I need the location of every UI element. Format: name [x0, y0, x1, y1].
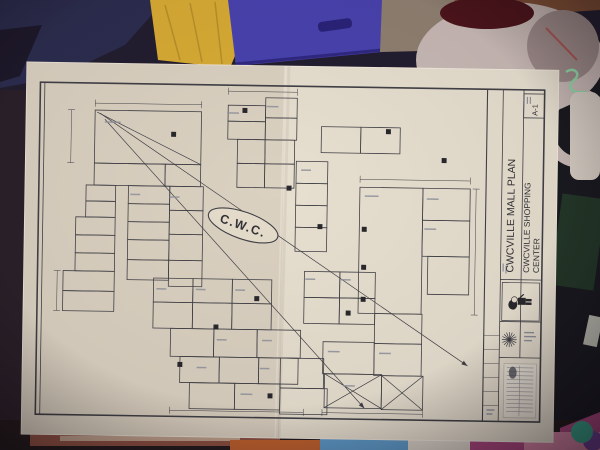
photo-of-mall-plan: C.W.C. A-1 CWCVILLE MALL PLAN CWCVILLE S… [0, 0, 600, 450]
vignette-overlay [0, 0, 600, 450]
